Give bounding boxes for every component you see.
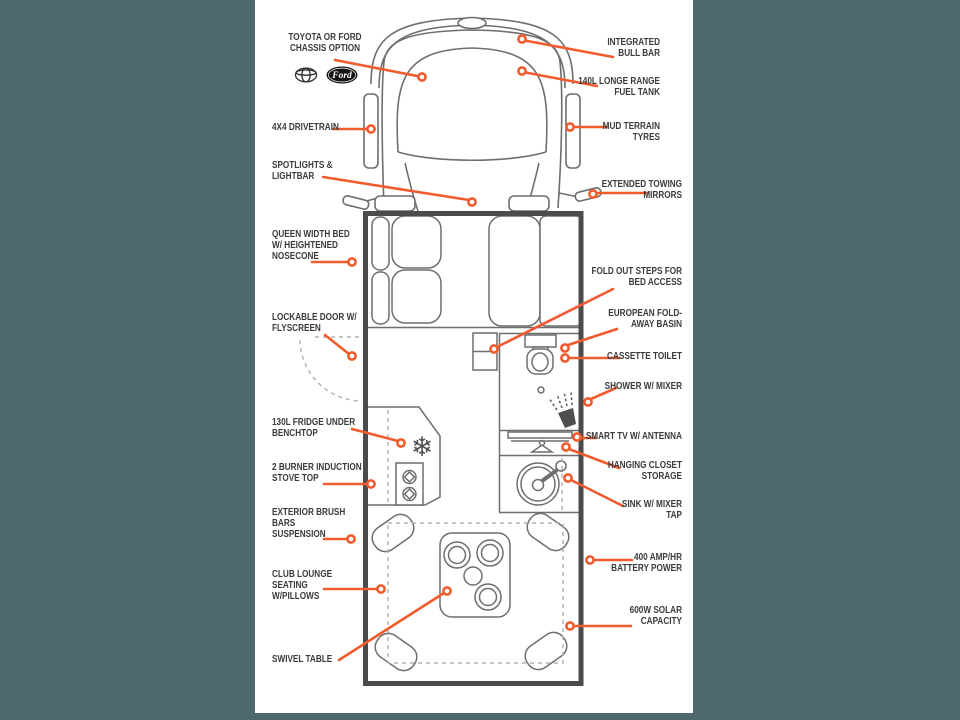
- label-brush-bars: EXTERIOR BRUSH BARS SUSPENSION: [272, 507, 366, 540]
- hanger-icon: [532, 441, 552, 453]
- tv-icon: [508, 432, 572, 438]
- label-towing-mirrors: EXTENDED TOWING MIRRORS: [581, 179, 682, 201]
- floorplan-sheet: Ford: [255, 0, 693, 713]
- label-swivel-table: SWIVEL TABLE: [272, 654, 366, 665]
- label-4x4-drivetrain: 4X4 DRIVETRAIN: [272, 122, 366, 133]
- cab-seat-right: [509, 196, 549, 211]
- door-swing-arc: [300, 340, 362, 401]
- fridge-snowflake-icon: ❄: [411, 432, 434, 463]
- shower-icon: [549, 391, 576, 428]
- bed-mattress: [489, 216, 540, 326]
- label-lockable-door: LOCKABLE DOOR W/ FLYSCREEN: [272, 312, 366, 334]
- winch-icon: [458, 18, 486, 29]
- cab-seat-left: [375, 196, 415, 211]
- ford-logo-icon: Ford: [327, 67, 358, 84]
- label-chassis-option: TOYOTA OR FORD CHASSIS OPTION: [288, 32, 363, 54]
- label-fridge: 130L FRIDGE UNDER BENCHTOP: [272, 417, 366, 439]
- label-queen-bed: QUEEN WIDTH BED W/ HEIGHTENED NOSECONE: [272, 229, 366, 262]
- mirror-left: [342, 195, 369, 210]
- toyota-logo-icon: [296, 68, 317, 82]
- label-stove: 2 BURNER INDUCTION STOVE TOP: [272, 462, 366, 484]
- lounge-pillow: [368, 510, 419, 557]
- pillow: [392, 216, 441, 268]
- basin-icon: [525, 335, 556, 347]
- page-background: Ford: [0, 0, 960, 720]
- label-cassette-toilet: CASSETTE TOILET: [581, 351, 682, 362]
- label-hanging-closet: HANGING CLOSET STORAGE: [581, 460, 682, 482]
- label-bull-bar: INTEGRATED BULL BAR: [559, 37, 660, 59]
- drain-icon: [538, 387, 544, 393]
- ford-logo-text: Ford: [331, 71, 352, 81]
- windshield-line: [398, 152, 546, 160]
- label-spotlights: SPOTLIGHTS & LIGHTBAR: [272, 160, 366, 182]
- swivel-table-icon: [440, 533, 510, 617]
- label-battery: 400 AMP/HR BATTERY POWER: [581, 552, 682, 574]
- label-smart-tv: SMART TV W/ ANTENNA: [581, 431, 682, 442]
- label-fold-out-steps: FOLD OUT STEPS FOR BED ACCESS: [581, 266, 682, 288]
- label-solar: 600W SOLAR CAPACITY: [581, 605, 682, 627]
- label-sink: SINK W/ MIXER TAP: [581, 499, 682, 521]
- label-basin: EUROPEAN FOLD- AWAY BASIN: [581, 308, 682, 330]
- label-club-lounge: CLUB LOUNGE SEATING W/PILLOWS: [272, 569, 366, 602]
- label-fuel-tank: 140L LONGE RANGE FUEL TANK: [559, 76, 660, 98]
- pillow: [392, 270, 441, 323]
- stove-icon: [396, 463, 423, 505]
- sink-icon: [517, 461, 566, 505]
- hood-line: [397, 48, 547, 152]
- lounge-pillow: [523, 509, 574, 556]
- label-mud-tyres: MUD TERRAIN TYRES: [559, 121, 660, 143]
- lounge-pillow: [521, 628, 572, 675]
- label-shower: SHOWER W/ MIXER: [581, 381, 682, 392]
